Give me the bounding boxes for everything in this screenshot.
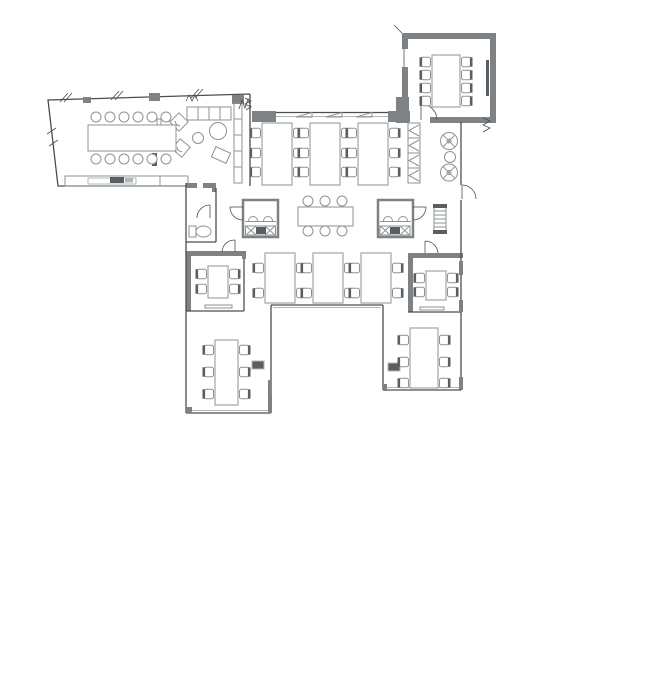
- desk: [432, 55, 460, 107]
- chair: [251, 148, 260, 157]
- round-table: [210, 123, 227, 140]
- kitchen-pod: [378, 200, 426, 237]
- floor-plan-canvas: [0, 0, 650, 700]
- chair-back: [414, 287, 417, 296]
- radiator: [433, 204, 447, 234]
- wall-block: [83, 97, 91, 103]
- chair-back: [420, 96, 423, 105]
- chair-back: [203, 367, 206, 376]
- chair-back: [398, 167, 401, 176]
- chair: [390, 167, 399, 176]
- credenza: [205, 305, 232, 308]
- chair-back: [398, 378, 401, 387]
- swivel-chair: [441, 164, 458, 181]
- chair: [299, 128, 308, 137]
- wc-vestibule: [186, 183, 216, 242]
- stool: [303, 226, 313, 236]
- credenza: [420, 307, 444, 310]
- chair: [197, 284, 206, 293]
- wing-left-desk-bank: [203, 340, 251, 405]
- chair-back: [448, 378, 451, 387]
- desk: [426, 271, 446, 300]
- chair-back: [238, 269, 241, 278]
- wall: [408, 253, 413, 312]
- chair-back: [349, 288, 352, 297]
- chair-back: [196, 269, 199, 278]
- chair: [448, 273, 457, 282]
- door-swing-arc: [197, 205, 210, 218]
- stool: [133, 154, 143, 164]
- chair-back: [248, 389, 251, 398]
- stool: [119, 112, 129, 122]
- chair-back: [398, 335, 401, 344]
- chair: [347, 128, 356, 137]
- chair-back: [420, 70, 423, 79]
- wall: [402, 67, 408, 99]
- wing-right-desk-bank: [398, 328, 451, 388]
- chair-back: [470, 70, 473, 79]
- chair-back: [349, 263, 352, 272]
- chair: [240, 389, 249, 398]
- desk: [208, 266, 228, 298]
- chair: [230, 269, 239, 278]
- wall: [242, 251, 246, 259]
- chair-back: [456, 287, 459, 296]
- side-table: [445, 152, 456, 163]
- door-swing-arc: [425, 241, 438, 253]
- chair: [240, 367, 249, 376]
- chair: [299, 167, 308, 176]
- locker-column: [408, 123, 420, 183]
- wall-screen: [486, 60, 489, 96]
- stool: [105, 112, 115, 122]
- wall: [459, 261, 463, 275]
- chair-back: [248, 345, 251, 354]
- chair-back: [301, 288, 304, 297]
- chair-back: [298, 148, 301, 157]
- wall: [408, 253, 463, 258]
- chair-back: [448, 357, 451, 366]
- wall: [459, 300, 463, 312]
- toilet: [189, 226, 211, 237]
- desk: [358, 123, 388, 185]
- stool: [320, 226, 330, 236]
- chair-back: [238, 284, 241, 293]
- wall: [268, 380, 271, 396]
- chair-back: [250, 128, 253, 137]
- wall: [383, 384, 387, 391]
- wall: [186, 251, 191, 311]
- chair: [421, 70, 430, 79]
- stool: [320, 196, 330, 206]
- kitchen-pod: [230, 200, 278, 237]
- ottoman: [211, 147, 230, 164]
- chair-back: [401, 288, 404, 297]
- chair: [230, 284, 239, 293]
- side-table: [193, 133, 204, 144]
- stool: [161, 154, 171, 164]
- chair: [421, 83, 430, 92]
- chair: [251, 167, 260, 176]
- chair: [347, 167, 356, 176]
- shelf-unit: [234, 103, 242, 183]
- chair: [299, 148, 308, 157]
- chair-back: [250, 148, 253, 157]
- wall: [186, 251, 245, 256]
- chair: [421, 57, 430, 66]
- chair-back: [253, 288, 256, 297]
- stool: [133, 112, 143, 122]
- chair-back: [298, 167, 301, 176]
- chair: [350, 288, 359, 297]
- chair: [462, 96, 471, 105]
- chair-back: [414, 273, 417, 282]
- desk: [361, 253, 391, 303]
- chair: [302, 263, 311, 272]
- stool: [337, 196, 347, 206]
- stool: [119, 154, 129, 164]
- chair: [350, 263, 359, 272]
- door-swing-arc: [462, 185, 476, 199]
- chair: [204, 367, 213, 376]
- swivel-chair: [441, 133, 458, 150]
- chair-back: [250, 167, 253, 176]
- wall: [186, 183, 197, 188]
- table: [88, 125, 176, 151]
- conference-table: [88, 112, 176, 164]
- stool: [147, 154, 157, 164]
- desk: [313, 253, 343, 303]
- wall: [459, 377, 463, 390]
- open-office-desk-bank-2: [298, 123, 353, 185]
- floor-plan-drawing: [0, 0, 650, 700]
- generated-furniture: [88, 55, 473, 405]
- chair-back: [470, 96, 473, 105]
- stool: [91, 154, 101, 164]
- chair-back: [346, 128, 349, 137]
- chair-back: [253, 263, 256, 272]
- chair: [421, 96, 430, 105]
- open-office-desk-bank-6: [349, 253, 404, 303]
- chair: [204, 345, 213, 354]
- breakout-table: [298, 196, 353, 236]
- chair-back: [346, 167, 349, 176]
- stool: [303, 196, 313, 206]
- open-office-desk-bank-3: [346, 123, 401, 185]
- chair-back: [448, 335, 451, 344]
- chair-back: [301, 263, 304, 272]
- wall: [268, 396, 272, 413]
- table: [298, 207, 353, 226]
- wall-column: [252, 111, 276, 122]
- wall-block: [149, 93, 160, 101]
- chair-back: [420, 57, 423, 66]
- chair-back: [420, 83, 423, 92]
- chair: [448, 287, 457, 296]
- wall: [430, 117, 496, 123]
- chair-back: [470, 83, 473, 92]
- chair-back: [401, 263, 404, 272]
- meeting-left-table: [196, 266, 241, 298]
- chair: [254, 288, 263, 297]
- chair: [390, 148, 399, 157]
- chair-back: [203, 389, 206, 398]
- chair-back: [298, 128, 301, 137]
- chair: [440, 335, 449, 344]
- wall: [402, 33, 496, 39]
- chair: [390, 128, 399, 137]
- chair: [399, 335, 408, 344]
- open-office-desk-bank-5: [301, 253, 356, 303]
- chair: [440, 378, 449, 387]
- chair: [415, 287, 424, 296]
- chair: [440, 357, 449, 366]
- stool: [91, 112, 101, 122]
- open-office-desk-bank-4: [253, 253, 308, 303]
- chair-back: [470, 57, 473, 66]
- chair: [251, 128, 260, 137]
- chair-back: [346, 148, 349, 157]
- chair-back: [203, 345, 206, 354]
- chair: [393, 288, 402, 297]
- door-swing-arc: [222, 240, 235, 252]
- open-office-desk-bank-1: [250, 123, 305, 185]
- corner-tick: [394, 25, 402, 33]
- chair: [254, 263, 263, 272]
- chair-back: [456, 273, 459, 282]
- sofa: [187, 107, 231, 120]
- desk: [262, 123, 292, 185]
- desk: [265, 253, 295, 303]
- chair: [462, 83, 471, 92]
- chair: [393, 263, 402, 272]
- chair: [347, 148, 356, 157]
- chair: [204, 389, 213, 398]
- chair-back: [398, 148, 401, 157]
- chair: [415, 273, 424, 282]
- stool: [161, 112, 171, 122]
- desk: [310, 123, 340, 185]
- chair-back: [196, 284, 199, 293]
- meeting-right-table: [414, 271, 459, 300]
- desk: [215, 340, 238, 405]
- wall: [402, 39, 408, 49]
- meeting-topright-table: [420, 55, 473, 107]
- chair-back: [398, 128, 401, 137]
- chair: [399, 357, 408, 366]
- stool: [105, 154, 115, 164]
- wall: [490, 39, 496, 123]
- chair: [240, 345, 249, 354]
- chair: [462, 70, 471, 79]
- chair: [197, 269, 206, 278]
- printer: [252, 361, 264, 369]
- credenza: [65, 176, 188, 186]
- chair-back: [248, 367, 251, 376]
- chair: [462, 57, 471, 66]
- stool: [337, 226, 347, 236]
- chair: [399, 378, 408, 387]
- wall: [186, 407, 192, 413]
- wall-column: [388, 111, 410, 122]
- desk: [410, 328, 438, 388]
- chair: [302, 288, 311, 297]
- stool: [147, 112, 157, 122]
- chair-back: [398, 357, 401, 366]
